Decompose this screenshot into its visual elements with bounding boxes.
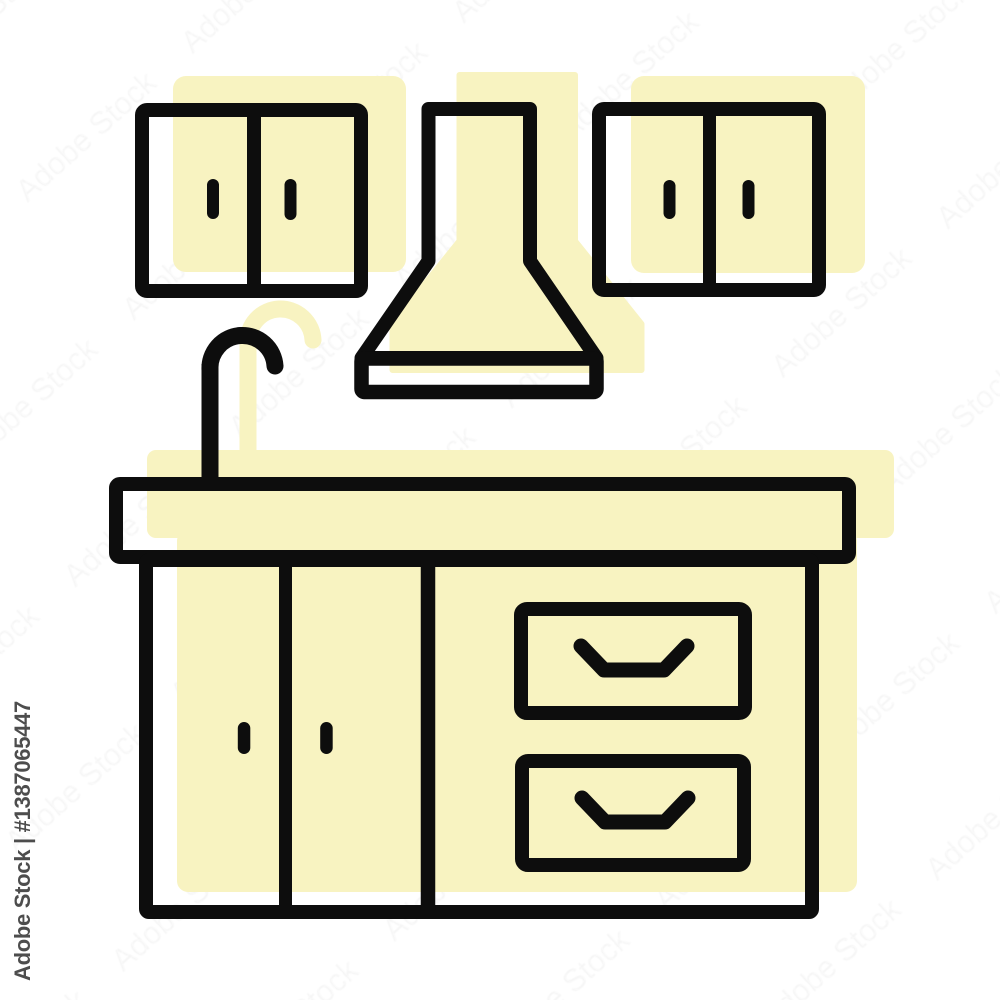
svg-text:Adobe Stock: Adobe Stock	[977, 476, 1000, 620]
svg-text:Adobe Stock: Adobe Stock	[929, 91, 1000, 235]
svg-text:Adobe Stock: Adobe Stock	[482, 921, 636, 1000]
svg-text:Adobe Stock: Adobe Stock	[445, 0, 599, 29]
svg-text:Adobe Stock: Adobe Stock	[174, 0, 328, 60]
svg-text:Adobe Stock: Adobe Stock	[0, 0, 57, 90]
svg-text:Adobe Stock: Adobe Stock	[211, 952, 365, 1000]
svg-text:Adobe Stock: Adobe Stock	[0, 331, 105, 475]
svg-text:Adobe Stock | #1387065447: Adobe Stock | #1387065447	[10, 701, 35, 981]
svg-text:Adobe Stock: Adobe Stock	[918, 743, 1000, 887]
